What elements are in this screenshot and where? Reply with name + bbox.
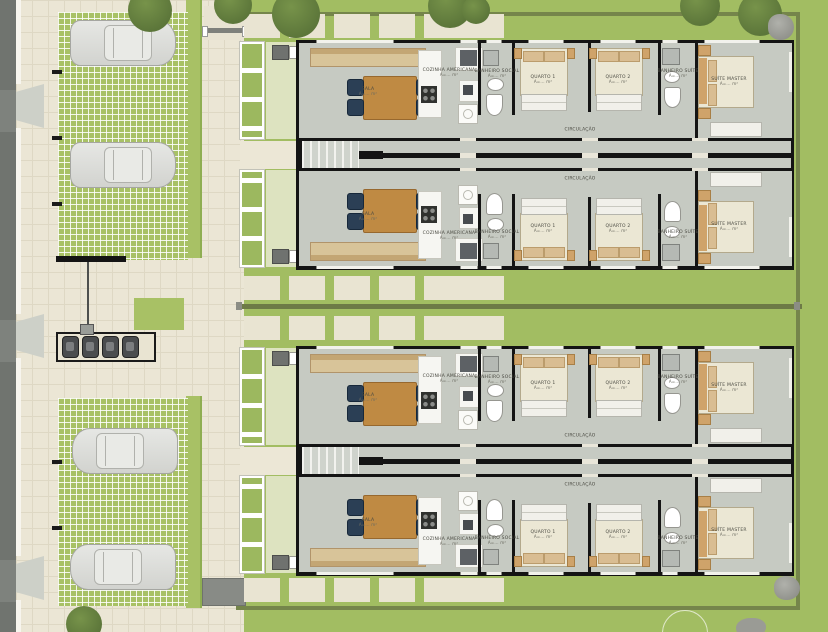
nightstand	[514, 48, 522, 59]
wall-inner	[296, 168, 794, 171]
window-suite	[704, 40, 760, 43]
room-label-cozinha: COZINHA AMERICANAA=... m²	[423, 231, 476, 241]
window-bedroom1	[528, 572, 564, 575]
window-bedroom2	[600, 266, 636, 269]
front-wall	[16, 358, 21, 556]
pillow	[544, 553, 565, 564]
shower	[483, 243, 499, 259]
parking-divider	[52, 202, 62, 206]
nightstand	[589, 48, 597, 59]
parking-divider	[52, 136, 62, 140]
wardrobe	[596, 400, 642, 417]
front-wall	[16, 128, 21, 314]
shower	[483, 50, 499, 66]
pillow	[598, 51, 619, 62]
window-suite	[704, 346, 760, 349]
road-patch	[0, 90, 16, 132]
wall	[478, 349, 481, 421]
nightstand	[698, 559, 711, 570]
window-suite-east	[789, 358, 792, 398]
nightstand	[514, 250, 522, 261]
planter-boxes	[240, 42, 264, 139]
stepping-stones	[244, 578, 424, 602]
apartment-unit: SALAA=... m² COZINHA AMERICANAA=... m² B…	[240, 40, 794, 141]
wardrobe	[596, 198, 642, 215]
kitchen-island	[418, 191, 442, 259]
pillow	[523, 357, 544, 368]
room-label-suite-master: SUÍTE MASTERA=... m²	[711, 383, 746, 393]
door-gap	[692, 153, 708, 158]
room-label-quarto1: QUARTO 1A=... m²	[531, 224, 556, 234]
pillow	[598, 553, 619, 564]
enclosure-wall	[56, 256, 126, 262]
planter-boxes	[240, 170, 264, 267]
room-label-banheiro-suite: BANHEIRO SUÍTEA=... m²	[657, 536, 698, 546]
bathroom-sink	[487, 384, 504, 397]
window-suite-bath	[662, 266, 678, 269]
door-gap	[582, 168, 598, 171]
room-label-circulacao: CIRCULAÇÃO	[564, 482, 595, 487]
window-bedroom1	[528, 346, 564, 349]
toilet	[664, 87, 681, 108]
room-label-quarto1: QUARTO 1A=... m²	[531, 381, 556, 391]
bathroom-sink	[487, 78, 504, 91]
pillow	[523, 51, 544, 62]
lamp-post	[87, 262, 89, 330]
pillow	[598, 247, 619, 258]
wall-west	[296, 40, 299, 141]
fridge	[460, 243, 477, 259]
dining-table	[363, 76, 417, 120]
nightstand	[698, 496, 711, 507]
window-suite-bath	[662, 572, 678, 575]
rock	[736, 618, 766, 632]
divider-post	[236, 302, 242, 310]
nightstand	[642, 48, 650, 59]
window-suite-bath	[662, 40, 678, 43]
stair-hall	[240, 447, 794, 475]
wardrobe	[710, 428, 762, 443]
headboard	[699, 364, 707, 410]
pillow	[619, 51, 640, 62]
room-label-suite-master: SUÍTE MASTERA=... m²	[711, 77, 746, 87]
door-gap	[582, 153, 598, 158]
pillow	[544, 51, 565, 62]
door-gap	[582, 459, 598, 464]
nightstand	[698, 45, 711, 56]
motorcycle	[122, 336, 139, 358]
car	[70, 142, 176, 188]
kitchen-sink	[463, 85, 473, 95]
staircase	[299, 447, 359, 475]
room-label-quarto2: QUARTO 2A=... m²	[606, 224, 631, 234]
toilet	[486, 193, 503, 215]
door-gap	[460, 444, 476, 447]
pillow	[598, 357, 619, 368]
chair	[347, 499, 364, 516]
wall-west	[296, 346, 299, 447]
window-suite	[704, 266, 760, 269]
chair	[347, 193, 364, 210]
washing-machine	[458, 185, 478, 205]
toilet	[664, 507, 681, 528]
sofa	[310, 48, 426, 67]
toilet	[664, 201, 681, 222]
washing-machine	[458, 410, 478, 430]
wall-inner	[296, 138, 794, 141]
shower	[483, 549, 499, 565]
nightstand	[589, 354, 597, 365]
kitchen-island	[418, 356, 442, 424]
door-gap	[460, 168, 476, 171]
bathroom-sink	[487, 524, 504, 537]
room-label-banheiro-social: BANHEIRO SOCIALA=... m²	[475, 536, 520, 546]
grass-patch	[134, 298, 184, 330]
grass-strip	[186, 396, 202, 608]
water-tank	[272, 351, 289, 366]
shower	[483, 356, 499, 372]
room-label-cozinha: COZINHA AMERICANAA=... m²	[423, 537, 476, 547]
window-living	[316, 572, 394, 575]
planter-boxes	[240, 476, 264, 573]
lot-divider-hedge	[236, 304, 802, 309]
motorcycle	[82, 336, 99, 358]
headboard	[699, 58, 707, 104]
kitchen-island	[418, 497, 442, 565]
door-gap	[582, 444, 598, 447]
window-kitchen	[460, 40, 478, 43]
wardrobe	[710, 478, 762, 493]
rock	[768, 14, 794, 40]
room-label-circulacao: CIRCULAÇÃO	[564, 433, 595, 438]
dining-table	[363, 495, 417, 539]
shower	[662, 48, 680, 65]
parking-divider	[52, 526, 62, 530]
tree-canopy	[680, 0, 720, 26]
window-bath	[486, 346, 502, 349]
window-bedroom2	[600, 40, 636, 43]
headboard	[699, 205, 707, 251]
kitchen-sink	[463, 391, 473, 401]
wardrobe	[710, 122, 762, 137]
door-gap	[460, 153, 476, 158]
door-gap	[460, 138, 476, 141]
window-suite-east	[789, 523, 792, 563]
car-cabin	[96, 433, 144, 469]
shower	[662, 354, 680, 371]
window-bedroom1	[528, 266, 564, 269]
nightstand	[698, 190, 711, 201]
window-kitchen	[460, 346, 478, 349]
kitchen-sink	[463, 214, 473, 224]
window-bedroom2	[600, 572, 636, 575]
pillow	[619, 247, 640, 258]
room-label-quarto2: QUARTO 2A=... m²	[606, 381, 631, 391]
water-tank	[272, 45, 289, 60]
room-label-suite-master: SUÍTE MASTERA=... m²	[711, 528, 746, 538]
room-label-sala: SALAA=... m²	[359, 518, 377, 528]
chair	[347, 99, 364, 116]
wall-stub	[359, 151, 383, 159]
room-label-banheiro-suite: BANHEIRO SUÍTEA=... m²	[657, 375, 698, 385]
window-kitchen	[460, 572, 478, 575]
apartment-unit: SALAA=... m² COZINHA AMERICANAA=... m² B…	[240, 474, 794, 575]
pillow	[544, 357, 565, 368]
grass-strip	[186, 0, 202, 258]
apartment-unit: SALAA=... m² COZINHA AMERICANAA=... m² B…	[240, 168, 794, 269]
path-slab	[424, 316, 504, 340]
nightstand	[567, 250, 575, 261]
door-gap	[692, 459, 708, 464]
wall-west	[296, 474, 299, 575]
door-gap	[692, 474, 708, 477]
room-label-quarto2: QUARTO 2A=... m²	[606, 75, 631, 85]
room-label-sala: SALAA=... m²	[359, 87, 377, 97]
wardrobe	[521, 94, 567, 111]
window-suite-bath	[662, 346, 678, 349]
road-patch	[0, 320, 16, 362]
wardrobe	[521, 198, 567, 215]
parking-divider	[52, 460, 62, 464]
nightstand	[514, 556, 522, 567]
wardrobe	[521, 504, 567, 521]
rock	[774, 576, 800, 600]
window-suite-east	[789, 52, 792, 92]
room-label-banheiro-social: BANHEIRO SOCIALA=... m²	[475, 69, 520, 79]
front-wall	[16, 600, 21, 632]
stair-hall	[240, 141, 794, 169]
nightstand	[567, 354, 575, 365]
entry-walk	[240, 141, 296, 169]
wardrobe	[521, 400, 567, 417]
stove	[421, 392, 437, 409]
wall	[658, 349, 661, 421]
stove	[421, 206, 437, 223]
fence-right	[796, 12, 800, 610]
lamp-head	[80, 324, 94, 335]
headboard	[699, 511, 707, 557]
nightstand	[698, 108, 711, 119]
toilet	[486, 94, 503, 116]
path-slab	[424, 578, 504, 602]
toilet	[486, 400, 503, 422]
pillow	[544, 247, 565, 258]
room-label-banheiro-suite: BANHEIRO SUÍTEA=... m²	[657, 230, 698, 240]
room-label-banheiro-suite: BANHEIRO SUÍTEA=... m²	[657, 69, 698, 79]
pillow	[619, 553, 640, 564]
window-kitchen	[460, 266, 478, 269]
room-label-banheiro-social: BANHEIRO SOCIALA=... m²	[475, 375, 520, 385]
washing-machine	[458, 491, 478, 511]
divider-post	[794, 302, 800, 310]
room-label-quarto1: QUARTO 1A=... m²	[531, 75, 556, 85]
car	[70, 544, 176, 590]
room-label-sala: SALAA=... m²	[359, 393, 377, 403]
window-bath	[486, 40, 502, 43]
car-cabin	[94, 549, 142, 585]
toilet	[486, 499, 503, 521]
apartment-unit: SALAA=... m² COZINHA AMERICANAA=... m² B…	[240, 346, 794, 447]
window-suite-east	[789, 217, 792, 257]
door-gap	[692, 168, 708, 171]
nightstand	[567, 556, 575, 567]
nightstand	[514, 354, 522, 365]
pillow	[523, 247, 544, 258]
motorcycle	[62, 336, 79, 358]
room-label-sala: SALAA=... m²	[359, 212, 377, 222]
window-suite	[704, 572, 760, 575]
car	[72, 428, 178, 474]
motorcycle	[102, 336, 119, 358]
staircase	[299, 141, 359, 169]
window-living	[316, 346, 394, 349]
stepping-stones	[244, 276, 424, 300]
stepping-stones	[244, 14, 424, 38]
door-gap	[460, 474, 476, 477]
water-tank	[272, 555, 289, 570]
window-living	[316, 40, 394, 43]
room-label-suite-master: SUÍTE MASTERA=... m²	[711, 222, 746, 232]
nightstand	[567, 48, 575, 59]
nightstand	[698, 414, 711, 425]
bathroom-sink	[487, 218, 504, 231]
wall-stub	[359, 457, 383, 465]
utility-pad	[202, 578, 246, 606]
nightstand	[698, 253, 711, 264]
dining-table	[363, 189, 417, 233]
window-bedroom2	[600, 346, 636, 349]
gate-bar	[204, 28, 244, 33]
sofa	[310, 354, 426, 373]
door-gap	[582, 138, 598, 141]
gate-post	[202, 26, 208, 37]
dining-table	[363, 382, 417, 426]
wall	[658, 43, 661, 115]
parking-divider	[52, 70, 62, 74]
pillow	[619, 357, 640, 368]
pillow	[708, 84, 717, 106]
fridge	[460, 50, 477, 66]
kitchen-sink	[463, 520, 473, 530]
entry-walk	[240, 447, 296, 475]
door-gap	[460, 459, 476, 464]
nightstand	[589, 556, 597, 567]
door-gap	[692, 444, 708, 447]
path-slab	[424, 276, 504, 300]
fridge	[460, 549, 477, 565]
motorcycle-parking	[56, 332, 156, 362]
planter-boxes	[240, 348, 264, 445]
room-label-quarto2: QUARTO 2A=... m²	[606, 530, 631, 540]
tree-outline	[662, 610, 708, 632]
wardrobe	[710, 172, 762, 187]
window-bath	[486, 572, 502, 575]
road-patch	[0, 560, 16, 602]
nightstand	[642, 250, 650, 261]
stove	[421, 512, 437, 529]
pillow	[523, 553, 544, 564]
room-label-cozinha: COZINHA AMERICANAA=... m²	[423, 68, 476, 78]
nightstand	[642, 354, 650, 365]
sofa	[310, 242, 426, 261]
fridge	[460, 356, 477, 372]
window-bedroom1	[528, 40, 564, 43]
pillow	[708, 390, 717, 412]
car-cabin	[104, 147, 152, 183]
washing-machine	[458, 104, 478, 124]
toilet	[664, 393, 681, 414]
stepping-stones	[244, 316, 424, 340]
nightstand	[589, 250, 597, 261]
window-bath	[486, 266, 502, 269]
shower	[662, 550, 680, 567]
door-gap	[692, 138, 708, 141]
room-label-banheiro-social: BANHEIRO SOCIALA=... m²	[475, 230, 520, 240]
room-label-circulacao: CIRCULAÇÃO	[564, 127, 595, 132]
shower	[662, 244, 680, 261]
wardrobe	[596, 94, 642, 111]
kitchen-island	[418, 50, 442, 118]
window-living	[316, 266, 394, 269]
stove	[421, 86, 437, 103]
nightstand	[642, 556, 650, 567]
water-tank	[272, 249, 289, 264]
wall	[478, 43, 481, 115]
nightstand	[698, 351, 711, 362]
room-label-quarto1: QUARTO 1A=... m²	[531, 530, 556, 540]
fence-bottom	[236, 606, 800, 610]
sofa	[310, 548, 426, 567]
site-floor-plan: SALAA=... m² COZINHA AMERICANAA=... m² B…	[0, 0, 828, 632]
front-wall	[16, 0, 21, 84]
chair	[347, 405, 364, 422]
wall-inner	[296, 444, 794, 447]
room-label-cozinha: COZINHA AMERICANAA=... m²	[423, 374, 476, 384]
wall-inner	[296, 474, 794, 477]
room-label-circulacao: CIRCULAÇÃO	[564, 176, 595, 181]
wall-west	[296, 168, 299, 269]
door-gap	[582, 474, 598, 477]
wardrobe	[596, 504, 642, 521]
